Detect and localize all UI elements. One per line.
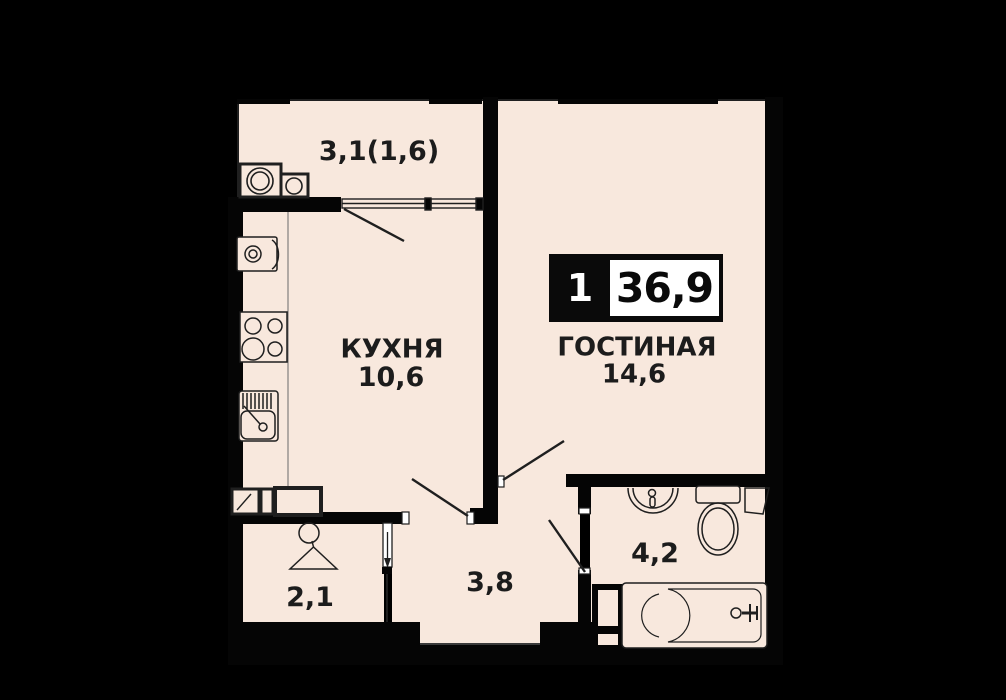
divider-wall — [483, 97, 498, 517]
outer-wall-right — [765, 97, 783, 660]
balcony-area-label: 3,1(1,6) — [319, 138, 439, 166]
bottom-wall-niche — [420, 645, 540, 665]
living-name-label: ГОСТИНАЯ — [557, 334, 716, 361]
room-count: 1 — [549, 254, 611, 322]
kitchen-name-label: КУХНЯ — [340, 336, 443, 363]
total-area-badge: 1 36,9 — [549, 254, 723, 322]
bathroom-area-label: 4,2 — [631, 540, 679, 568]
balcony-pier-right — [429, 99, 482, 104]
total-area-value: 36,9 — [610, 260, 719, 316]
balcony-pier-left — [237, 99, 290, 104]
kitchen-bottom-wall — [228, 512, 408, 524]
bathroom-bottom-wall — [590, 648, 783, 665]
bathroom-top-wall — [582, 474, 770, 487]
kitchen-area-label: 10,6 — [358, 364, 425, 392]
wardrobe-area-label: 2,1 — [286, 584, 334, 612]
entrance-niche-floor — [420, 622, 540, 645]
hallway-area-label: 3,8 — [466, 569, 514, 597]
bottom-wall-left — [228, 622, 420, 665]
living-area-label: 14,6 — [602, 361, 666, 388]
living-pier — [558, 99, 718, 104]
floorplan-canvas: 3,1(1,6) КУХНЯ 10,6 ГОСТИНАЯ 14,6 2,1 3,… — [0, 0, 1006, 700]
balcony-kitchen-wall — [228, 197, 341, 212]
living-bottom-jamb — [566, 474, 582, 487]
bathroom-left-wall-upper — [578, 487, 591, 514]
outer-wall-left — [228, 197, 243, 665]
divider-wall-foot — [470, 508, 498, 524]
